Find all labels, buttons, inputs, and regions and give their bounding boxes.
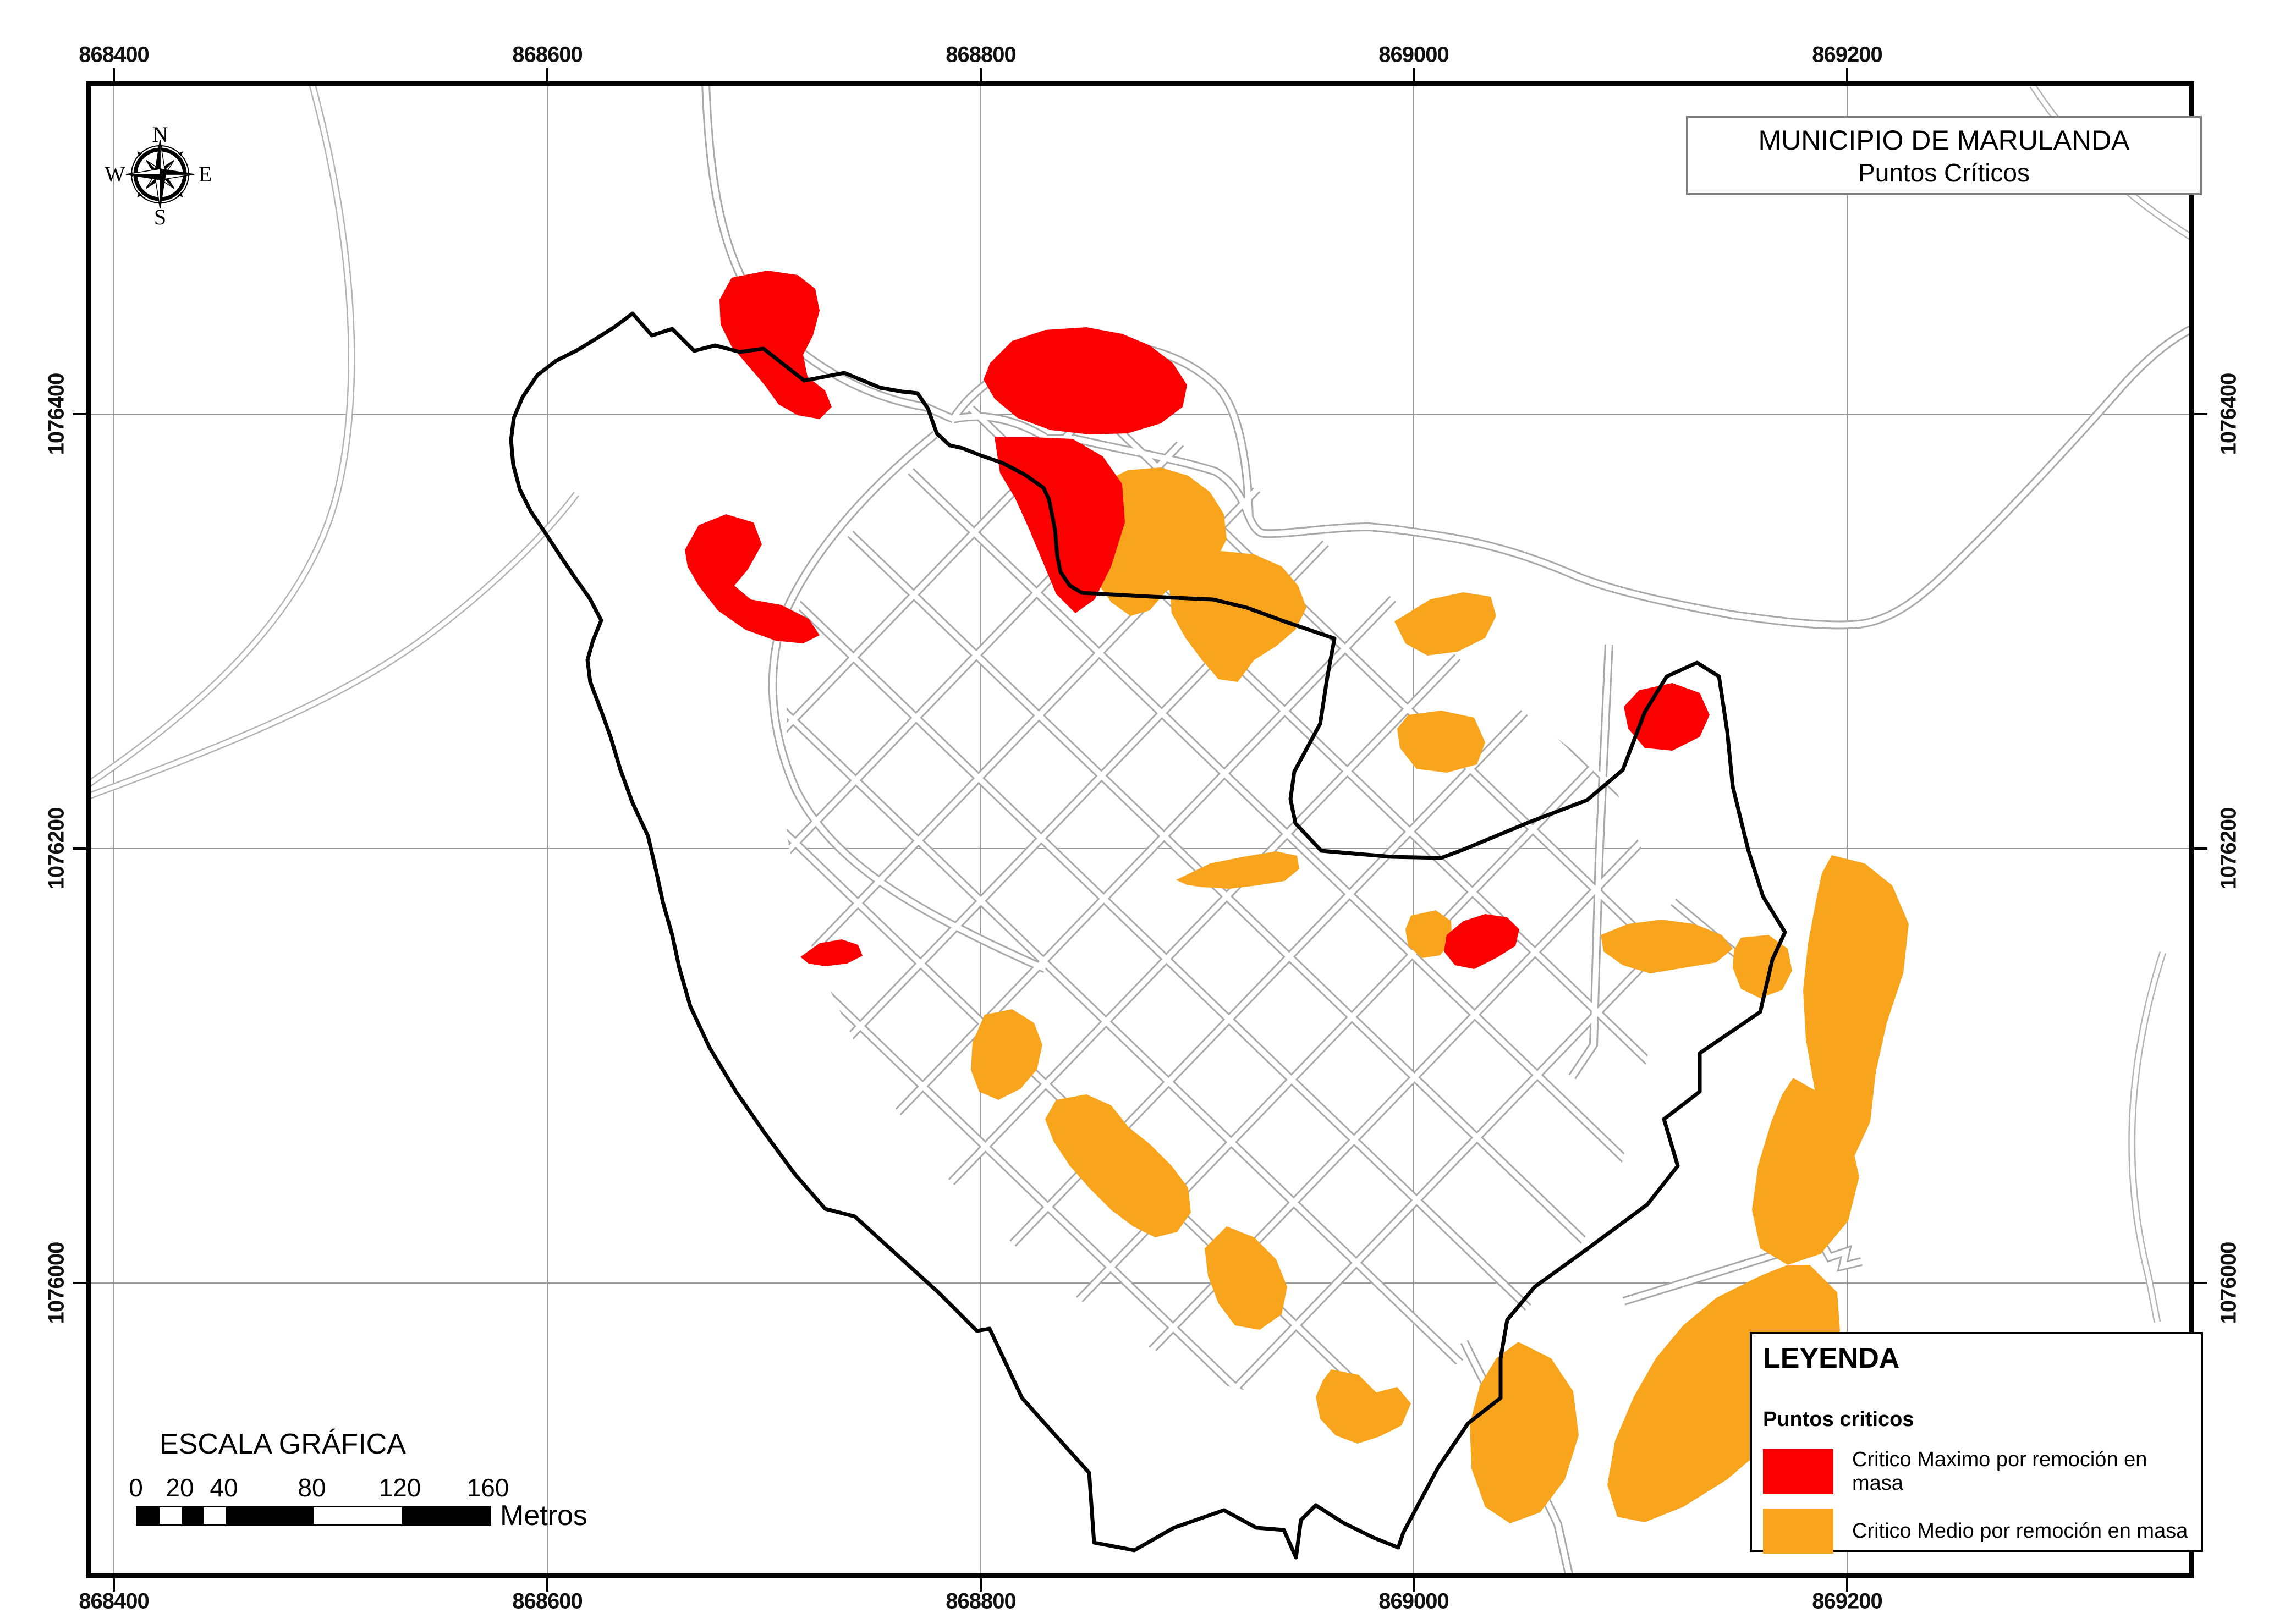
axis-label-bottom: 868600: [512, 1589, 582, 1614]
scale-tick-label: 80: [298, 1473, 326, 1502]
legend-title: LEYENDA: [1763, 1342, 2190, 1375]
legend: LEYENDA Puntos criticos Critico Maximo p…: [1750, 1332, 2203, 1552]
axis-label-top: 869200: [1812, 43, 1882, 68]
map-title: MUNICIPIO DE MARULANDA: [1758, 123, 2129, 158]
scale-bar: [136, 1506, 491, 1526]
scale-unit-label: Metros: [500, 1499, 587, 1532]
legend-item: Critico Maximo por remoción en masa: [1763, 1448, 2190, 1495]
scale-tick-label: 0: [129, 1473, 143, 1502]
critical-medium-polygon: [1205, 1226, 1287, 1330]
scale-tick-label: 20: [166, 1473, 194, 1502]
critical-max-polygon: [800, 939, 863, 966]
map-document: 8684008684008686008686008688008688008690…: [0, 0, 2274, 1624]
critical-medium-polygon: [1169, 551, 1306, 682]
scale-bar-segment: [226, 1507, 314, 1524]
critical-medium-polygon: [1394, 592, 1496, 656]
compass-e-label: E: [199, 162, 212, 186]
critical-medium-polygon: [1316, 1369, 1411, 1444]
compass-rose-icon: N S W E: [72, 86, 248, 262]
critical-medium-polygon: [1601, 920, 1733, 973]
axis-label-left: 1076000: [45, 1242, 69, 1324]
critical-medium-polygon: [1470, 1342, 1579, 1523]
scale-bar-segment: [204, 1507, 226, 1524]
scale-tick-label: 160: [467, 1473, 509, 1502]
legend-subtitle: Puntos criticos: [1763, 1408, 2190, 1432]
title-box: MUNICIPIO DE MARULANDA Puntos Críticos: [1686, 116, 2202, 195]
legend-label: Critico Medio por remoción en masa: [1852, 1520, 2188, 1543]
scale-bar-segment: [182, 1507, 204, 1524]
scale-bar-segment: [314, 1507, 402, 1524]
axis-label-bottom: 868800: [946, 1589, 1015, 1614]
legend-label: Critico Maximo por remoción en masa: [1852, 1448, 2190, 1495]
axis-label-top: 868800: [946, 43, 1015, 68]
legend-swatch-critical-medium: [1763, 1509, 1833, 1554]
critical-max-polygon: [1624, 683, 1710, 751]
legend-item: Critico Medio por remoción en masa: [1763, 1509, 2190, 1554]
scale-title: ESCALA GRÁFICA: [160, 1428, 406, 1461]
axis-label-top: 868600: [512, 43, 582, 68]
axis-label-left: 1076200: [45, 808, 69, 890]
legend-swatch-critical-max: [1763, 1449, 1833, 1494]
scale-tick-label: 120: [379, 1473, 421, 1502]
legend-items: Critico Maximo por remoción en masaCriti…: [1763, 1448, 2190, 1554]
axis-label-bottom: 869000: [1378, 1589, 1448, 1614]
critical-medium-polygon: [1397, 711, 1485, 773]
compass-n-label: N: [152, 122, 168, 147]
axis-label-right: 1076200: [2217, 808, 2242, 890]
critical-medium-polygon: [971, 1009, 1042, 1100]
compass-w-label: W: [105, 162, 125, 186]
map-subtitle: Puntos Críticos: [1858, 158, 2030, 188]
axis-label-right: 1076000: [2217, 1242, 2242, 1324]
compass-s-label: S: [154, 205, 166, 229]
scale-bar-segment: [402, 1507, 490, 1524]
axis-label-left: 1076400: [45, 373, 69, 455]
critical-max-polygon: [1444, 914, 1519, 969]
scale-tick-label: 40: [210, 1473, 238, 1502]
axis-label-bottom: 869200: [1812, 1589, 1882, 1614]
graphic-scale: ESCALA GRÁFICA 0204080120160 Metros: [136, 1428, 708, 1549]
critical-medium-polygon: [1733, 935, 1792, 998]
axis-label-right: 1076400: [2217, 373, 2242, 455]
axis-label-bottom: 868400: [79, 1589, 149, 1614]
scale-bar-segment: [138, 1507, 160, 1524]
scale-bar-segment: [160, 1507, 182, 1524]
axis-label-top: 868400: [79, 43, 149, 68]
critical-max-polygon: [719, 271, 832, 419]
critical-medium-polygon: [1045, 1094, 1191, 1237]
axis-label-top: 869000: [1378, 43, 1448, 68]
